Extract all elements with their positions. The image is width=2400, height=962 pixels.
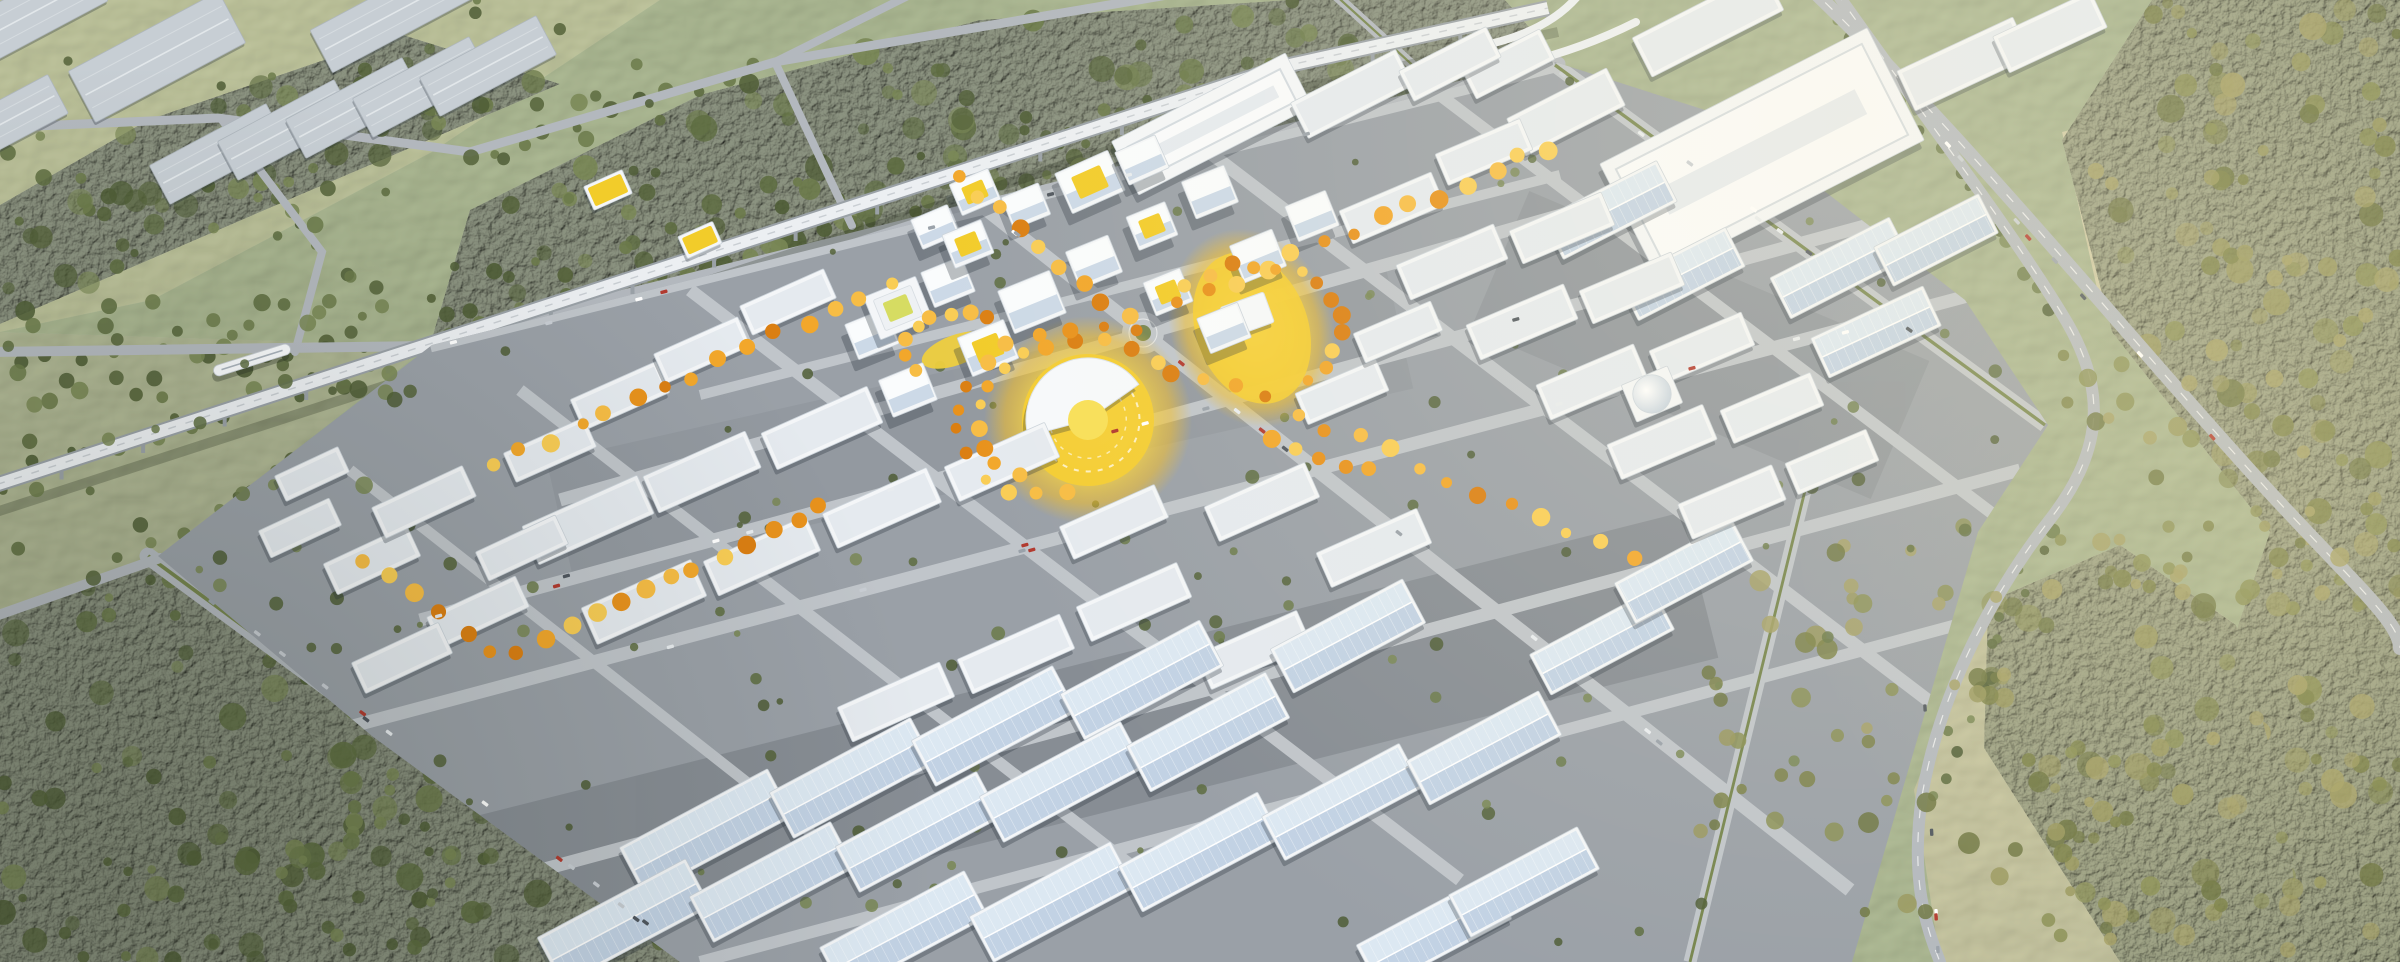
tree bbox=[530, 97, 544, 111]
orange-tree bbox=[898, 332, 913, 347]
orange-tree bbox=[909, 364, 922, 377]
tree-canopy bbox=[573, 155, 598, 180]
tree bbox=[578, 131, 594, 147]
tree bbox=[639, 184, 656, 201]
tree bbox=[469, 6, 482, 19]
street-tree bbox=[909, 557, 918, 566]
street-tree bbox=[793, 177, 802, 186]
tree-canopy bbox=[702, 194, 722, 214]
tree-canopy bbox=[424, 44, 435, 55]
tree bbox=[629, 166, 639, 176]
scene-svg bbox=[0, 0, 2400, 962]
street-tree bbox=[802, 368, 813, 379]
orange-tree bbox=[765, 324, 780, 339]
tree-canopy bbox=[883, 63, 894, 74]
orange-tree bbox=[886, 277, 898, 289]
street-tree bbox=[665, 222, 677, 234]
aerial-masterplan-rendering bbox=[0, 0, 2400, 962]
tree bbox=[570, 94, 587, 111]
street-tree bbox=[775, 200, 790, 215]
tree-canopy bbox=[858, 123, 869, 134]
orange-tree bbox=[801, 316, 818, 333]
tree bbox=[651, 168, 661, 178]
street-tree bbox=[946, 659, 957, 670]
street-tree bbox=[947, 861, 956, 870]
tree-canopy bbox=[655, 115, 666, 126]
orange-tree bbox=[828, 301, 844, 317]
tree bbox=[631, 58, 643, 70]
tree bbox=[554, 23, 566, 35]
street-tree bbox=[735, 208, 746, 219]
orange-tree bbox=[851, 291, 866, 306]
tree bbox=[621, 204, 637, 220]
street-tree bbox=[991, 626, 1005, 640]
street-tree bbox=[830, 249, 836, 255]
tree-canopy bbox=[760, 176, 778, 194]
street-tree bbox=[1056, 846, 1068, 858]
tree-canopy bbox=[745, 92, 763, 110]
tree-canopy bbox=[739, 74, 759, 94]
tree bbox=[645, 99, 654, 108]
tree bbox=[590, 90, 601, 101]
orange-tree bbox=[899, 349, 912, 362]
tree-canopy bbox=[691, 115, 718, 142]
